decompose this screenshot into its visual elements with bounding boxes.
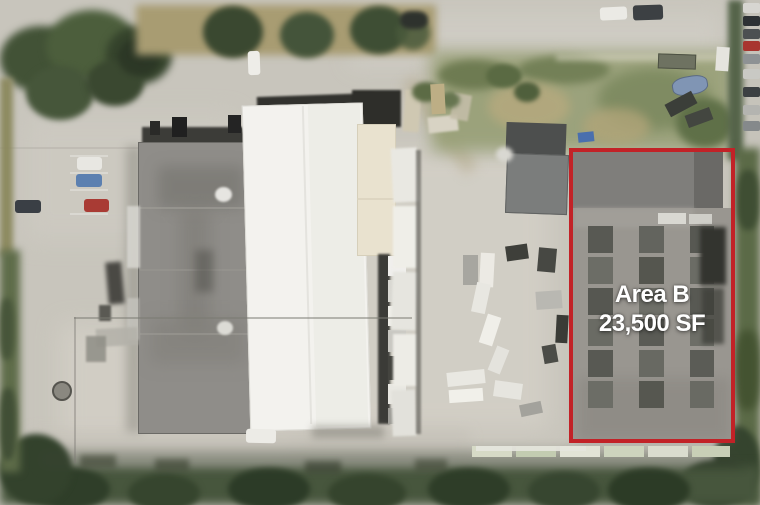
parked-car: [743, 54, 760, 64]
parked-car-red: [743, 41, 760, 51]
parked-car: [743, 3, 760, 13]
parked-car-blue: [76, 174, 102, 187]
parked-car: [743, 69, 760, 79]
dark-vehicle-cluster: [400, 11, 428, 29]
parking-line: [70, 172, 108, 174]
parking-line: [70, 213, 108, 215]
parked-car: [743, 105, 760, 115]
area-name-text: Area B: [573, 280, 731, 309]
flatbed-trailer: [692, 446, 730, 457]
parked-car-dark: [15, 200, 41, 213]
parked-car: [743, 16, 760, 26]
flatbed-trailer: [648, 446, 688, 457]
white-van: [248, 51, 261, 75]
parked-car-red: [84, 199, 109, 212]
parked-car: [743, 29, 760, 39]
parking-line: [70, 155, 108, 157]
area-size-text: 23,500 SF: [573, 309, 731, 338]
area-b-highlight-box: Area B 23,500 SF: [569, 148, 735, 443]
pipe-stack: [476, 446, 586, 451]
flatbed-trailer: [604, 446, 644, 457]
area-b-label: Area B 23,500 SF: [573, 280, 731, 338]
parked-car-white: [246, 429, 276, 444]
parked-car: [743, 87, 760, 97]
parked-car-white: [77, 157, 102, 170]
aerial-photo: Area B 23,500 SF: [0, 0, 760, 505]
parked-car-white: [600, 6, 628, 20]
parked-car: [743, 121, 760, 131]
parked-van-dark: [633, 4, 664, 20]
parking-line: [70, 189, 108, 191]
